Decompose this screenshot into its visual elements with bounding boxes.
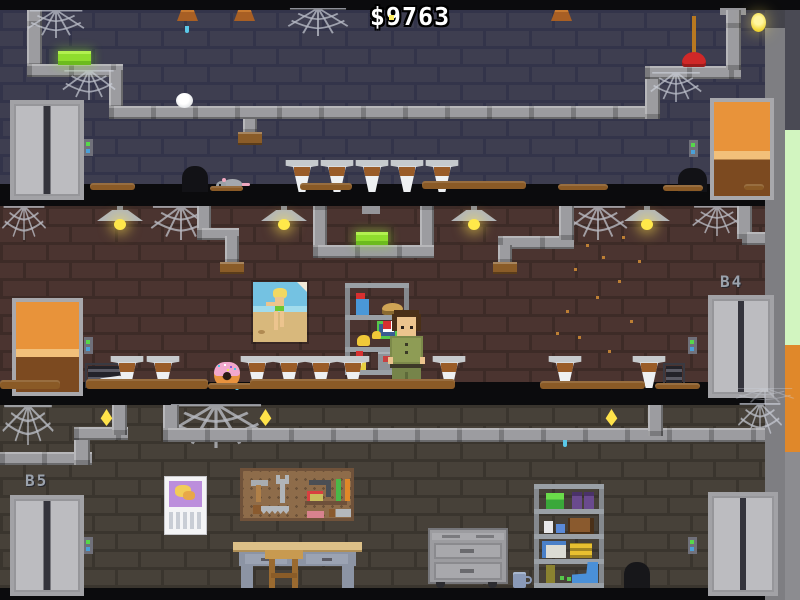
poster-figure-arm — [266, 302, 275, 306]
cobweb — [60, 70, 118, 100]
cobweb — [0, 405, 56, 445]
elevator-door-top-left[interactable] — [10, 100, 84, 200]
elevator-call-button[interactable] — [84, 537, 93, 554]
dust-speck — [574, 268, 577, 271]
elevator-call-button[interactable] — [688, 537, 697, 554]
dirt-patch — [655, 383, 700, 389]
pipe — [648, 405, 663, 436]
pegboard — [240, 468, 354, 521]
dirt-patch — [210, 186, 243, 191]
water-drip — [563, 440, 567, 447]
elevator-door-b5-left[interactable] — [10, 495, 84, 596]
calendar — [165, 477, 206, 534]
cabinet-wheel — [488, 582, 497, 588]
dirt-patch — [208, 383, 256, 389]
storage-shelf — [534, 484, 604, 588]
blue-item — [556, 524, 565, 533]
dirt-patch — [90, 183, 135, 190]
shelf-board — [534, 534, 604, 539]
dust-speck — [566, 310, 569, 313]
rubber-duck[interactable] — [372, 331, 381, 339]
elevator-call-button[interactable] — [84, 139, 93, 156]
olive-bottle — [546, 565, 555, 583]
wrench-prong — [285, 475, 289, 484]
screwdriver-orange[interactable] — [345, 479, 350, 501]
package-box — [542, 541, 566, 558]
light-switch[interactable] — [84, 337, 93, 354]
drawer-handle — [460, 549, 474, 553]
dust-speck — [586, 244, 589, 247]
dust-speck — [630, 320, 633, 323]
dirt-patch — [86, 379, 208, 389]
rubber-duck[interactable] — [357, 335, 370, 346]
brown-box — [568, 518, 594, 534]
wrench-prong — [276, 475, 280, 484]
plunger-icon[interactable] — [682, 52, 706, 67]
shaft-strip-dark — [785, 10, 800, 130]
stool-seat — [265, 550, 303, 559]
stool — [265, 550, 303, 588]
cobweb — [690, 206, 744, 236]
dust-speck — [622, 236, 625, 239]
pipe — [109, 106, 649, 119]
purple-jar — [572, 492, 582, 509]
dust-speck — [608, 350, 611, 353]
dirt-patch — [540, 381, 645, 389]
dirt-patch — [744, 184, 764, 190]
game-screen: $9763 — [0, 0, 800, 600]
water-drip — [185, 26, 189, 33]
workbench-leg — [241, 566, 253, 588]
pipe — [74, 436, 90, 465]
dust-speck — [578, 336, 581, 339]
pipe — [559, 206, 574, 240]
poster-figure-leg — [274, 311, 278, 330]
dirt-patch — [250, 379, 455, 389]
purple-jar — [584, 492, 594, 509]
pink-item — [307, 511, 324, 518]
character-button — [405, 343, 408, 346]
cabinet-wheel — [436, 582, 445, 588]
sandwich-item — [307, 491, 323, 501]
drawer-handle — [460, 569, 474, 573]
character-hair-side — [416, 314, 421, 331]
pipe — [225, 236, 239, 264]
yellow-box — [570, 543, 592, 558]
donut-sprinkle — [218, 365, 220, 367]
character-eye — [410, 326, 413, 329]
glow-bar-item[interactable] — [58, 51, 91, 65]
spray-nozzle — [356, 293, 365, 299]
rat-ear — [222, 178, 226, 182]
mug[interactable] — [513, 572, 526, 588]
shaft-column-cap — [765, 10, 785, 28]
spray-cap-red — [356, 351, 363, 356]
dirt-patch — [558, 184, 608, 190]
tool-shelf-bar — [305, 501, 347, 505]
character-button — [405, 351, 408, 354]
trowel-icon[interactable] — [329, 509, 351, 517]
calendar-grid — [169, 512, 202, 529]
shaft-strip-gray — [785, 452, 800, 600]
door-top-right[interactable] — [710, 98, 774, 200]
character-janitor[interactable] — [388, 310, 425, 389]
character-torso — [390, 336, 423, 364]
plunger-handle — [692, 16, 696, 54]
stool-rung — [271, 573, 297, 578]
pipe — [742, 232, 765, 245]
calendar-picture-blob2 — [183, 491, 195, 500]
ceiling-lamp — [624, 206, 670, 232]
elevator-door-b4[interactable] — [708, 295, 774, 398]
dust-speck — [618, 280, 621, 283]
ceiling-lamp — [451, 206, 497, 232]
rolling-cabinet — [428, 528, 508, 588]
shelf-board — [534, 484, 604, 489]
dirt-patch — [422, 181, 526, 189]
pipe-flange — [238, 132, 262, 145]
screwdriver-green[interactable] — [336, 479, 341, 501]
character-face — [397, 317, 416, 336]
toilet-paper-roll[interactable] — [176, 93, 193, 108]
drawer-handle — [442, 535, 460, 538]
shelf-board — [345, 283, 409, 288]
saw-icon[interactable] — [261, 506, 289, 514]
spray-bottle-blue[interactable] — [356, 299, 369, 315]
cobweb — [0, 206, 48, 240]
rat-tail — [241, 183, 250, 186]
green-dot-item — [560, 576, 564, 580]
pipe-ceiling-mount — [362, 206, 380, 214]
pipe — [313, 245, 434, 258]
shaft-strip-green — [785, 130, 800, 345]
mouse-hole — [182, 166, 208, 192]
character-eye — [401, 326, 404, 329]
workbench-leg — [342, 566, 354, 588]
dirt-patch — [663, 185, 703, 191]
poster-figure-leg — [280, 311, 284, 327]
pipe — [726, 10, 741, 70]
saw-handle — [253, 505, 262, 514]
poster-stain — [258, 330, 265, 334]
dust-speck — [602, 256, 605, 259]
floor-label-b4: B4 — [720, 272, 743, 291]
floor-label-b5: B5 — [25, 471, 48, 490]
money-counter: $9763 — [340, 2, 480, 31]
glow-bar-item[interactable] — [356, 232, 388, 245]
white-item — [544, 521, 553, 533]
dust-speck — [638, 260, 641, 263]
pipe — [112, 405, 127, 435]
blue-boot[interactable] — [572, 562, 598, 583]
shelf-board — [534, 509, 604, 514]
dust-speck — [596, 296, 599, 299]
cobweb — [566, 206, 630, 240]
cobweb — [733, 388, 797, 404]
pipe — [163, 428, 765, 442]
cobweb — [25, 10, 87, 38]
cobweb — [648, 72, 704, 102]
ceiling-lamp — [97, 206, 143, 232]
dirt-patch — [300, 183, 352, 190]
drawer-handle — [322, 558, 332, 561]
elevator-call-button[interactable] — [688, 337, 697, 354]
hammer-handle — [256, 485, 261, 502]
floor-divider-3 — [0, 588, 765, 600]
poster — [253, 282, 307, 342]
drawer-handle — [476, 535, 494, 538]
character-hand — [420, 357, 425, 364]
character-hand — [388, 357, 393, 364]
light-switch[interactable] — [689, 140, 698, 157]
green-box — [546, 493, 564, 509]
donut-hole — [223, 372, 231, 380]
pipe-flange — [220, 262, 244, 274]
elevator-door-b5-right[interactable] — [708, 492, 778, 596]
trash-mound — [624, 562, 650, 588]
pipe-flange — [493, 262, 517, 274]
poster-corner-fold — [297, 282, 307, 292]
dirt-patch — [0, 380, 60, 389]
sparkle — [389, 15, 394, 20]
ceiling-lamp — [261, 206, 307, 232]
shelf-board — [534, 583, 604, 588]
lightbulb — [751, 13, 766, 32]
dust-speck — [556, 332, 559, 335]
